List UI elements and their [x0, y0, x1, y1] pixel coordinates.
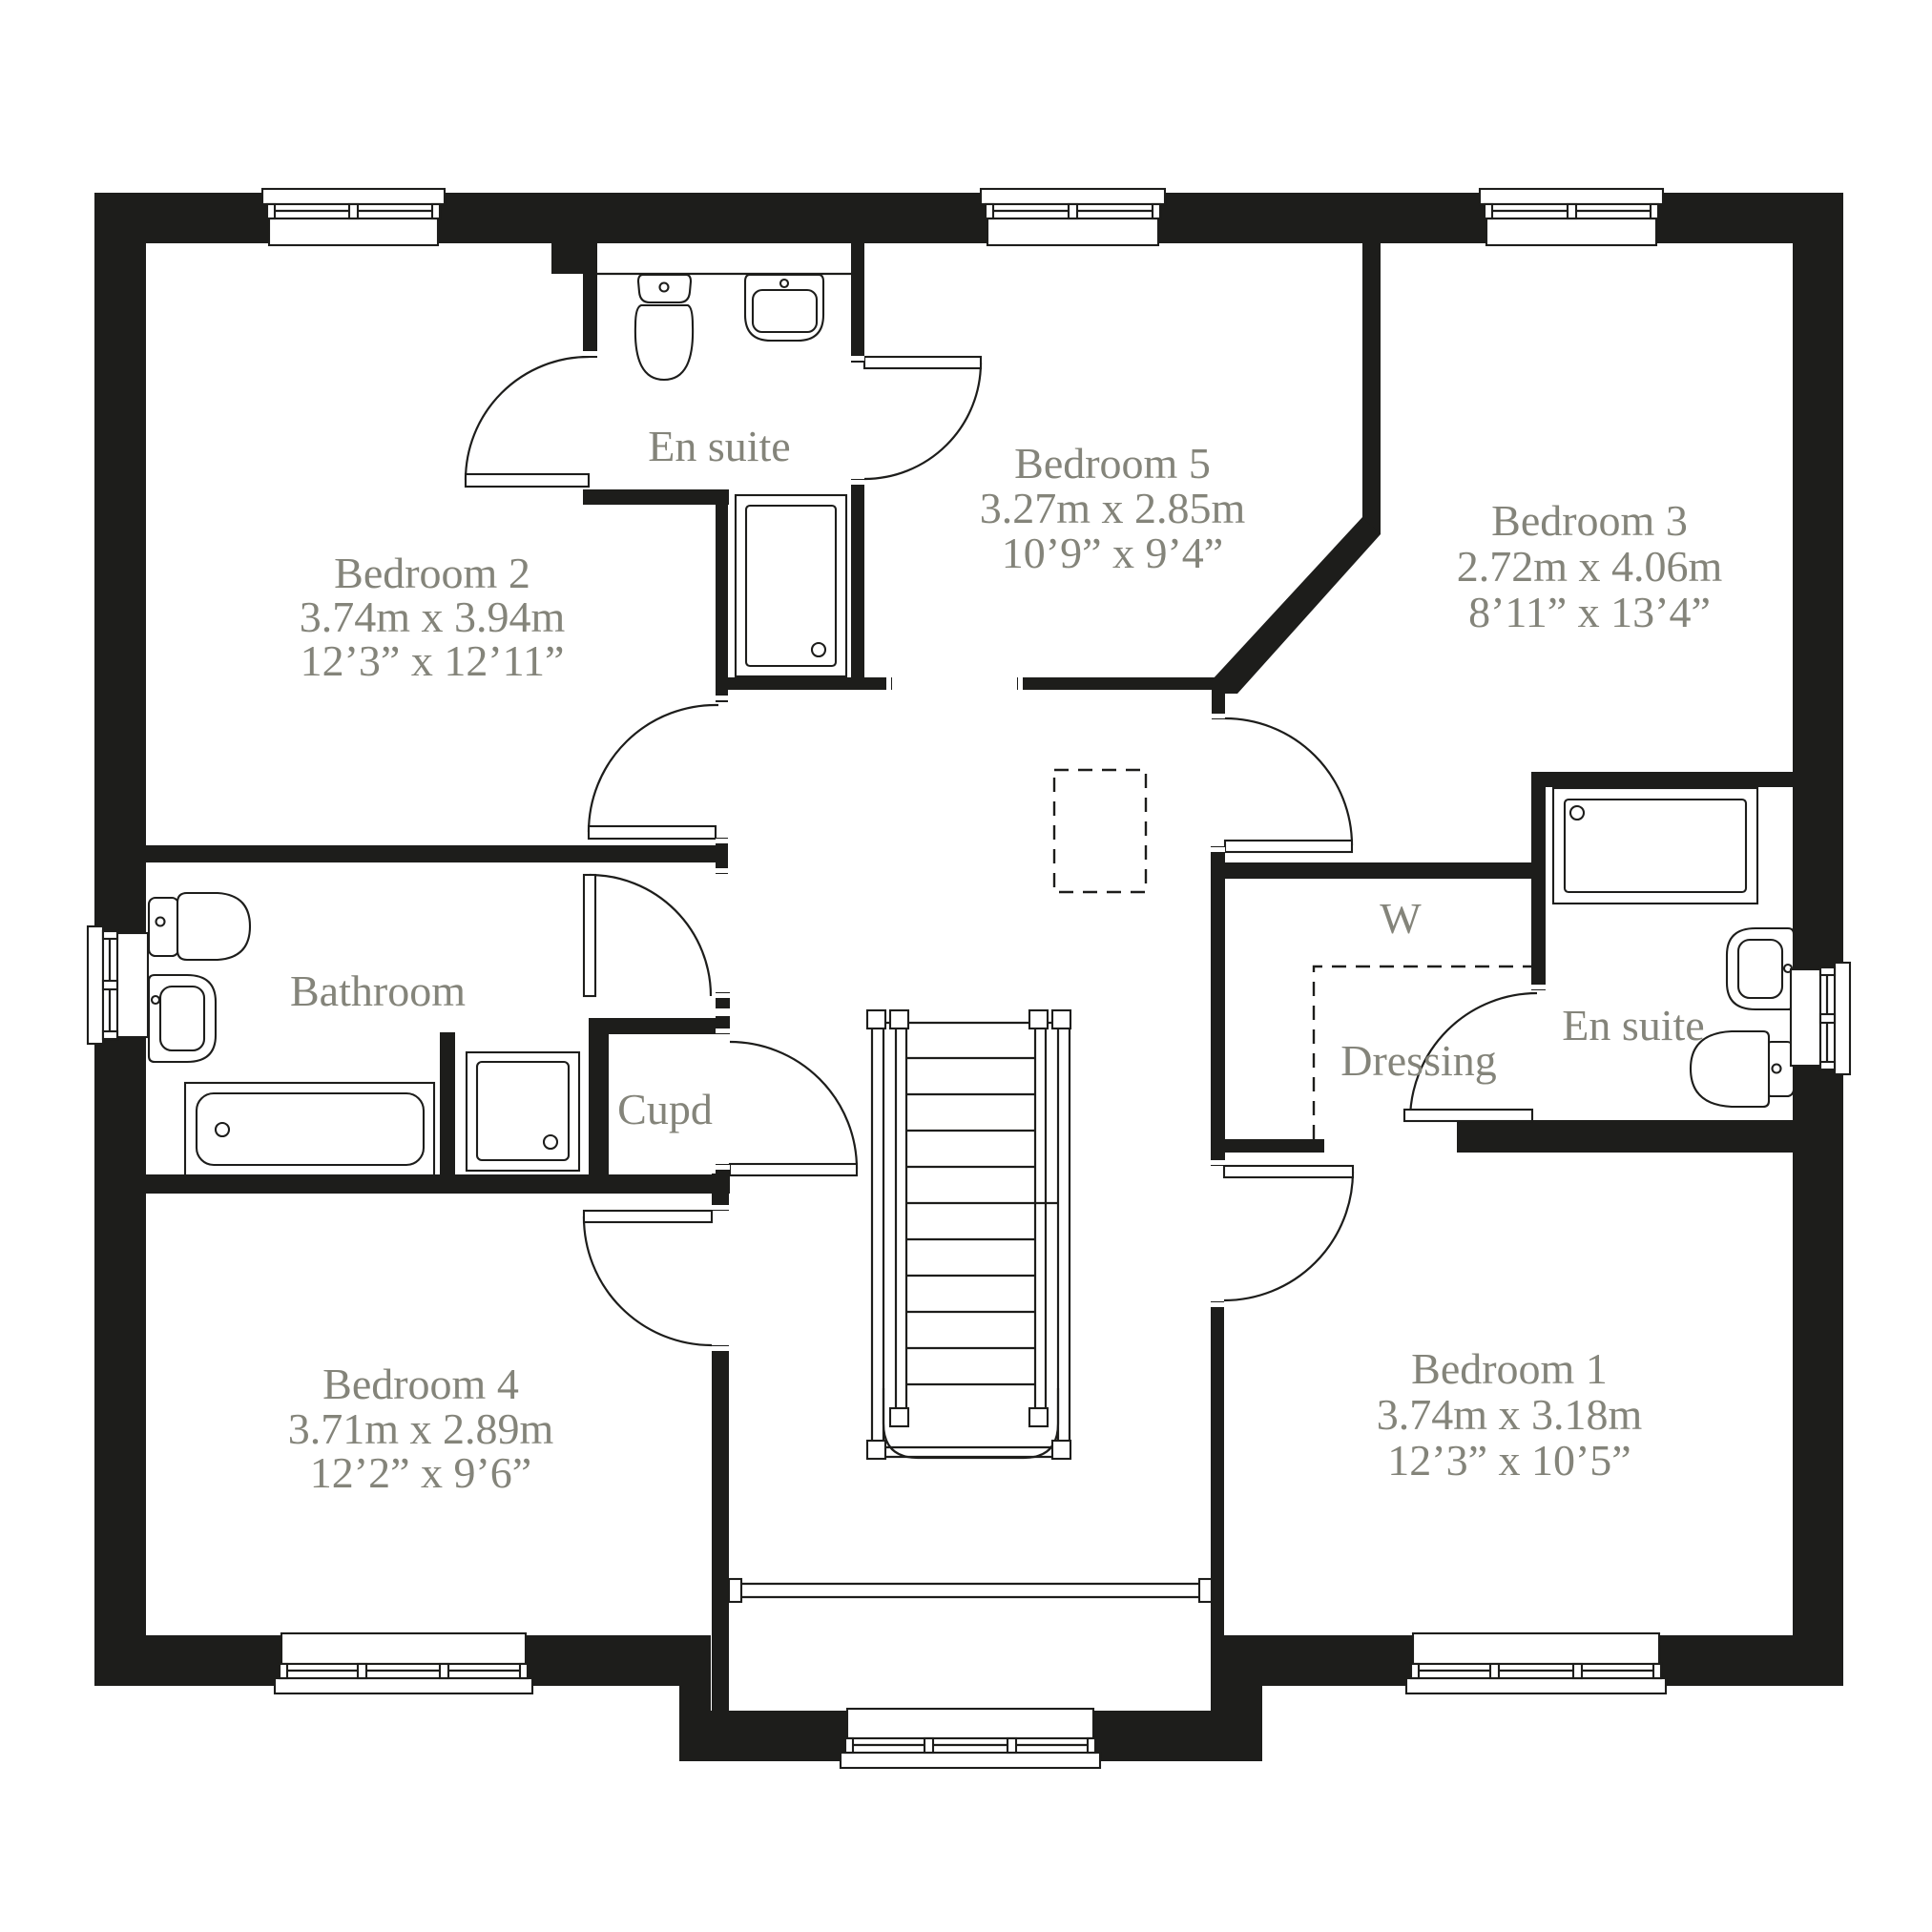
svg-text:2.72m x 4.06m: 2.72m x 4.06m	[1457, 542, 1723, 591]
svg-text:12’2” x 9’6”: 12’2” x 9’6”	[310, 1448, 531, 1497]
svg-text:W: W	[1380, 894, 1422, 943]
svg-text:En suite: En suite	[1562, 1001, 1704, 1049]
svg-text:Bedroom 4: Bedroom 4	[322, 1360, 519, 1408]
svg-text:8’11” x 13’4”: 8’11” x 13’4”	[1468, 588, 1711, 636]
svg-text:Bathroom: Bathroom	[290, 966, 466, 1015]
svg-text:En suite: En suite	[648, 422, 790, 470]
svg-text:Bedroom 2: Bedroom 2	[334, 549, 530, 597]
svg-text:Cupd: Cupd	[617, 1085, 713, 1133]
svg-text:Bedroom 5: Bedroom 5	[1014, 439, 1211, 488]
svg-text:Bedroom 3: Bedroom 3	[1491, 496, 1688, 545]
svg-text:3.74m x 3.94m: 3.74m x 3.94m	[300, 592, 566, 641]
svg-text:12’3” x 12’11”: 12’3” x 12’11”	[301, 636, 565, 685]
svg-text:Dressing: Dressing	[1340, 1036, 1497, 1085]
svg-text:12’3” x 10’5”: 12’3” x 10’5”	[1387, 1436, 1631, 1485]
svg-text:3.71m x 2.89m: 3.71m x 2.89m	[288, 1404, 554, 1453]
svg-text:3.74m x 3.18m: 3.74m x 3.18m	[1377, 1390, 1643, 1439]
svg-text:Bedroom 1: Bedroom 1	[1411, 1344, 1608, 1393]
svg-text:10’9” x 9’4”: 10’9” x 9’4”	[1002, 529, 1223, 577]
svg-text:3.27m x 2.85m: 3.27m x 2.85m	[980, 484, 1246, 532]
